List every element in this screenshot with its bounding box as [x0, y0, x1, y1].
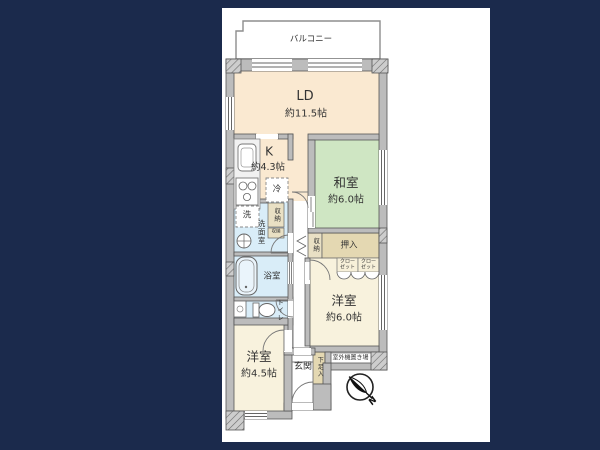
toilet-vanity-icon	[234, 301, 246, 317]
floorplan-drawing	[0, 0, 600, 450]
window-left-ld	[226, 97, 234, 130]
outdoor-unit-label: 室外機置き場	[332, 355, 368, 362]
room-kitchen-label: K	[265, 145, 273, 158]
closet-left-label: クローゼット	[340, 259, 355, 271]
room-ld-size: 約11.5帖	[285, 109, 327, 120]
washer-label: 洗	[243, 211, 252, 220]
hall-storage-upper-label: 収納	[272, 208, 279, 223]
room-washitsu-size: 約6.0帖	[328, 195, 364, 206]
room-ld-label: LD	[296, 90, 313, 104]
washroom-label: 洗面室	[257, 219, 265, 245]
oshiire-label: 押入	[340, 241, 357, 250]
room-yoshitsu45-label: 洋室	[246, 350, 271, 364]
refrigerator-label: 冷	[273, 185, 282, 194]
window-top-right	[308, 59, 362, 71]
balcony-label: バルコニー	[290, 35, 332, 44]
shoe-cabinet-label: 下足入	[316, 357, 323, 378]
hall-storage-lower-label: 収納	[272, 231, 281, 236]
room-yoshitsu6-label: 洋室	[331, 294, 356, 308]
corridor-storage-label: 収納	[311, 238, 318, 253]
room-kitchen-size: 約4.3帖	[251, 163, 285, 173]
toilet-icon	[253, 303, 275, 317]
closet-right-label: クローゼット	[361, 259, 376, 271]
window-top-left	[252, 59, 292, 71]
bathtub-icon	[236, 257, 257, 295]
window-bottom-yoshitsu45	[245, 411, 267, 419]
bathroom-label: 浴室	[263, 272, 280, 281]
window-right-washitsu	[379, 150, 387, 205]
entrance-label: 玄関	[294, 363, 312, 373]
toilet-label: トイレ	[275, 299, 282, 322]
washbasin-icon	[237, 234, 251, 248]
window-right-yoshitsu6	[379, 275, 387, 330]
stove-icon	[236, 178, 258, 205]
floorplan-page: バルコニー LD 約11.5帖 K 約4.3帖 冷 和室 約6.0帖 洗 洗面室…	[0, 0, 600, 450]
room-yoshitsu6-size: 約6.0帖	[326, 313, 362, 324]
room-yoshitsu45-size: 約4.5帖	[241, 369, 277, 380]
room-washitsu-label: 和室	[333, 176, 358, 190]
